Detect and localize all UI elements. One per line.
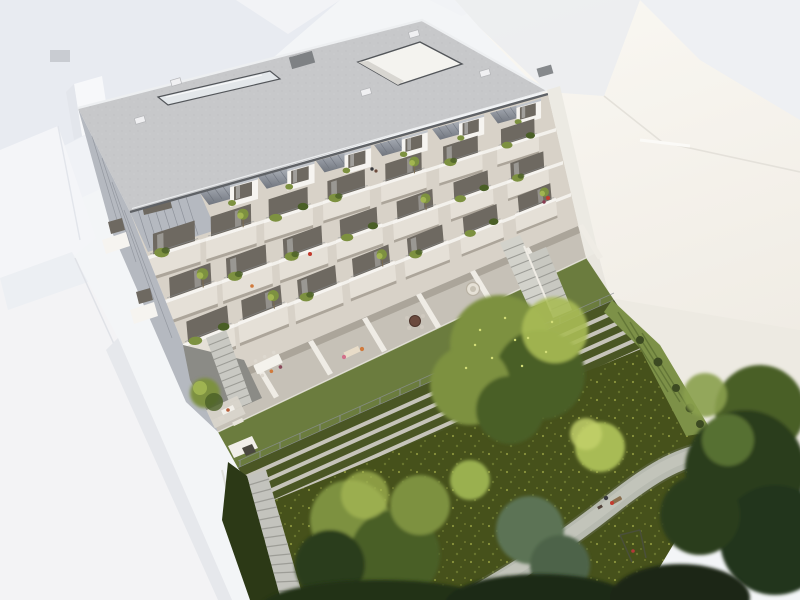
- person: [342, 355, 346, 359]
- aerial-rendering-stage: [0, 0, 800, 600]
- swing-seat: [631, 549, 635, 553]
- person-sunbathing: [226, 408, 230, 412]
- hanging-chair: [467, 283, 480, 296]
- person: [360, 347, 364, 351]
- aerial-rendering: [0, 0, 800, 600]
- neighbor-chimney: [50, 50, 70, 62]
- person: [604, 496, 608, 500]
- person: [610, 501, 614, 505]
